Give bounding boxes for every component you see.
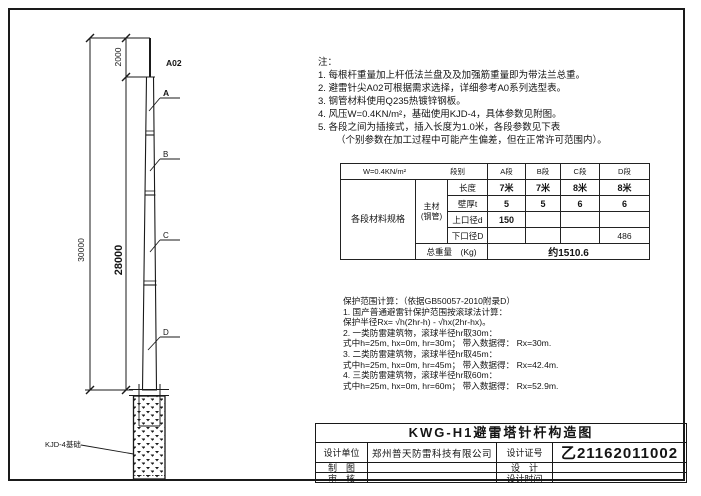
pole-body: [143, 38, 157, 390]
segment-column-label: 段别: [450, 166, 465, 177]
draft-value: [367, 462, 496, 472]
table-side-label: 各段材料规格: [341, 180, 416, 260]
length-c: 8米: [561, 180, 600, 196]
segment-label-b: B: [163, 150, 168, 159]
calc-line: 式中h=25m, hx=0m, hr=45m； 带入数据得： Rx=42.4m.: [343, 360, 683, 371]
thickness-c: 6: [561, 196, 600, 212]
main-material-label: 主材 (钢管): [416, 180, 448, 244]
calc-line: 保护半径Rx= √h(2hr-h) - √hx(2hr-hx)。: [343, 317, 683, 328]
table-header-wind-cell: W=0.4KN/m² 段别: [341, 164, 488, 180]
main-material-line2: (钢管): [416, 212, 447, 222]
thickness-a: 5: [488, 196, 526, 212]
drawing-title: KWG-H1避雷塔针杆构造图: [316, 424, 686, 443]
length-a: 7米: [488, 180, 526, 196]
review-value: [367, 472, 496, 483]
length-b: 7米: [526, 180, 561, 196]
row-label-length: 长度: [448, 180, 488, 196]
wind-pressure-label: W=0.4KN/m²: [363, 167, 406, 176]
col-header-segment-d: D段: [600, 164, 650, 180]
total-weight-label: 总重量 (Kg): [416, 244, 488, 260]
top-diameter-a: 150: [488, 212, 526, 228]
note-item-continuation: （个别参数在加工过程中可能产生偏差，但在正常许可范围内）。: [318, 134, 683, 147]
note-item: 1. 每根杆重量加上杆低法兰盘及及加强筋重量即为带法兰总重。: [318, 69, 683, 82]
bottom-diameter-a: [488, 228, 526, 244]
length-d: 8米: [600, 180, 650, 196]
segment-spec-table: W=0.4KN/m² 段别 A段 B段 C段 D段 各段材料规格 主材 (钢管)…: [340, 163, 650, 260]
draft-label: 制 图: [316, 462, 367, 472]
segment-label-c: C: [163, 231, 169, 240]
col-header-segment-c: C段: [561, 164, 600, 180]
dim-tip-label: 2000: [113, 47, 123, 66]
calc-line: 式中h=25m, hx=0m, hr=60m； 带入数据得： Rx=52.9m.: [343, 381, 683, 392]
top-diameter-b: [526, 212, 561, 228]
main-material-line1: 主材: [416, 202, 447, 212]
design-label: 设 计: [496, 462, 552, 472]
calc-line: 2. 一类防雷建筑物，滚球半径hr取30m：: [343, 328, 683, 339]
protection-calc-block: 保护范围计算：（依据GB50057-2010附录D） 1. 国产普通避雷针保护范…: [343, 296, 683, 391]
notes-title: 注：: [318, 56, 683, 69]
cert-label: 设计证号: [496, 443, 552, 462]
row-label-thickness: 壁厚t: [448, 196, 488, 212]
design-unit-label: 设计单位: [316, 443, 367, 462]
drawing-sheet: 2000 30000 28000 A B C D A02: [8, 8, 685, 481]
calc-line: 3. 二类防雷建筑物，滚球半径hr取45m：: [343, 349, 683, 360]
design-value: [552, 462, 686, 472]
date-label: 设计时间: [496, 472, 552, 483]
thickness-b: 5: [526, 196, 561, 212]
segment-label-a: A: [163, 88, 169, 98]
segment-label-d: D: [163, 328, 169, 337]
col-header-segment-a: A段: [488, 164, 526, 180]
review-label: 审 核: [316, 472, 367, 483]
note-item: 4. 风压W=0.4KN/m²，基础使用KJD-4，具体参数见附图。: [318, 108, 683, 121]
top-diameter-d: [600, 212, 650, 228]
note-item: 3. 钢管材料使用Q235热镀锌钢板。: [318, 95, 683, 108]
col-header-segment-b: B段: [526, 164, 561, 180]
title-block: KWG-H1避雷塔针杆构造图 设计单位 郑州普天防雷科技有限公司 设计证号 乙2…: [315, 423, 687, 483]
design-unit-value: 郑州普天防雷科技有限公司: [367, 443, 496, 462]
notes-block: 注： 1. 每根杆重量加上杆低法兰盘及及加强筋重量即为带法兰总重。 2. 避雷针…: [318, 56, 683, 147]
cert-number: 乙21162011002: [552, 443, 686, 462]
calc-title: 保护范围计算：（依据GB50057-2010附录D）: [343, 296, 683, 307]
foundation-label: KJD-4基础: [45, 439, 81, 449]
tip-model-label: A02: [166, 58, 182, 68]
calc-line: 4. 三类防雷建筑物，滚球半径hr取60m：: [343, 370, 683, 381]
top-diameter-c: [561, 212, 600, 228]
calc-line: 式中h=25m, hx=0m, hr=30m； 带入数据得： Rx=30m.: [343, 338, 683, 349]
dim-overall-label: 30000: [76, 238, 86, 262]
bottom-diameter-b: [526, 228, 561, 244]
row-label-top-diameter: 上口径d: [448, 212, 488, 228]
total-weight-value: 约1510.6: [488, 244, 650, 260]
note-item: 5. 各段之间为插接式，插入长度为1.0米，各段参数见下表: [318, 121, 683, 134]
calc-line: 1. 国产普通避雷针保护范围按滚球法计算：: [343, 307, 683, 318]
date-value: [552, 472, 686, 483]
note-item: 2. 避雷针尖A02可根据需求选择，详细参考A0系列选型表。: [318, 82, 683, 95]
foundation: [81, 384, 169, 479]
bottom-diameter-d: 486: [600, 228, 650, 244]
row-label-bottom-diameter: 下口径D: [448, 228, 488, 244]
bottom-diameter-c: [561, 228, 600, 244]
thickness-d: 6: [600, 196, 650, 212]
dim-pole-label: 28000: [113, 245, 125, 276]
